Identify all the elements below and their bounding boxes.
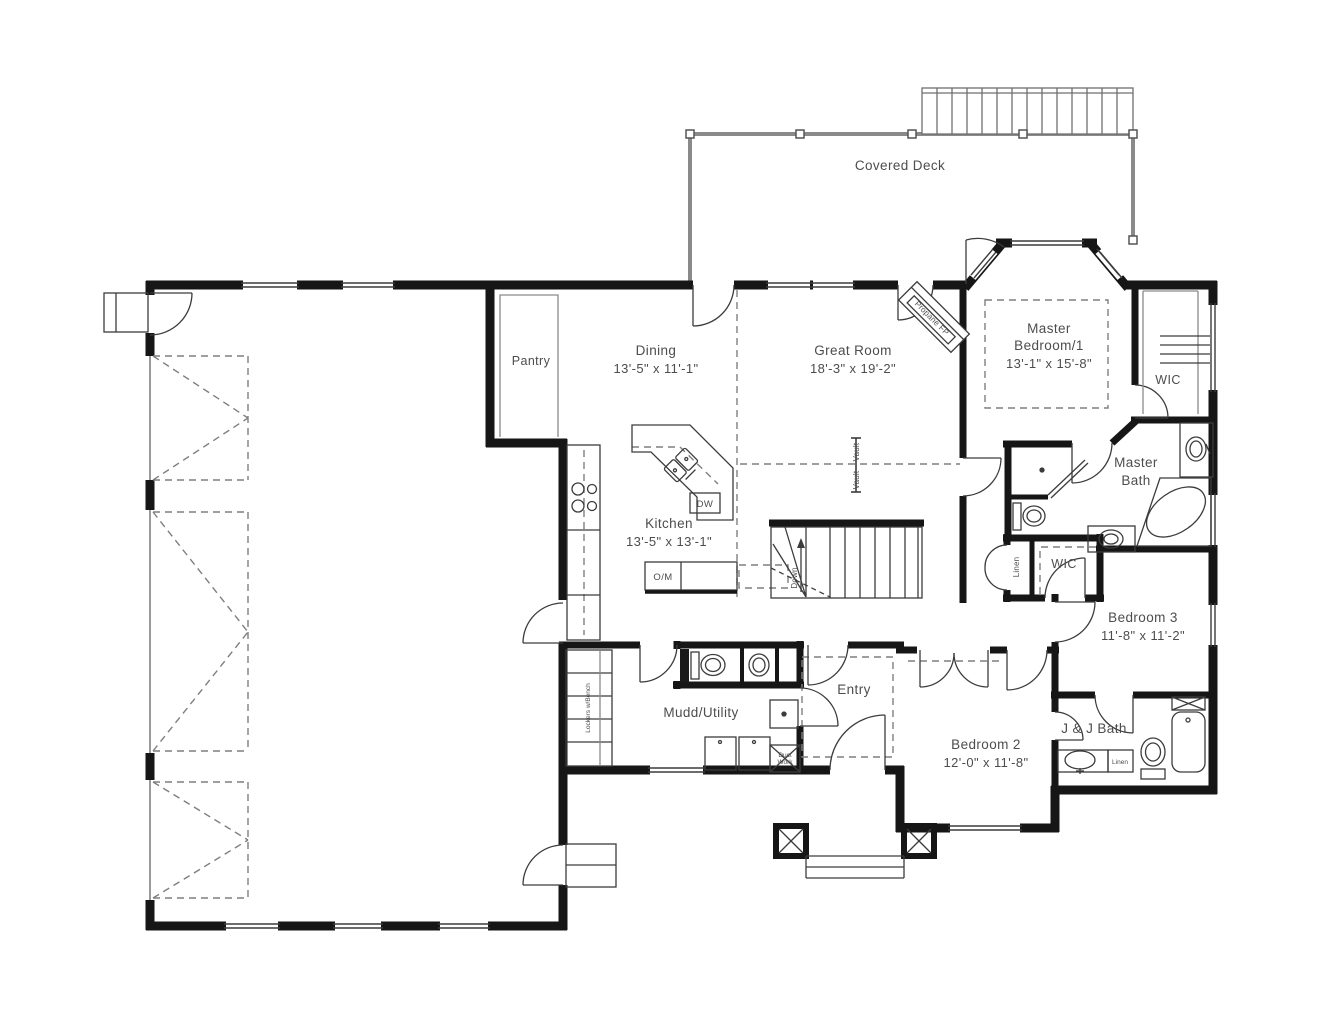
pantry-label: Pantry — [512, 354, 551, 368]
dw-label: DW — [697, 499, 714, 510]
pocket-door — [680, 649, 689, 682]
jj-bath-fixtures — [1058, 697, 1205, 779]
master-bath-label-1: Master — [1114, 455, 1158, 470]
floor-plan: Covered Deck Pantry Dining 13'-5" x 11'-… — [0, 0, 1320, 1020]
bedroom2-name: Bedroom 2 — [951, 737, 1021, 752]
porch — [104, 293, 934, 887]
kitchen-dims: 13'-5" x 13'-1" — [626, 534, 712, 549]
linen-hall-label: Linen — [1012, 557, 1021, 578]
great-room-dims: 18'-3" x 19'-2" — [810, 361, 896, 376]
wic-master-label: WIC — [1155, 373, 1181, 387]
duct-label-2: Work — [777, 759, 793, 766]
powder-fixtures — [691, 645, 777, 685]
entry-label: Entry — [837, 682, 871, 697]
master-bedroom-name-1: Master — [1027, 321, 1071, 336]
covered-deck — [686, 88, 1137, 285]
jj-bath-label: J & J Bath — [1061, 721, 1127, 736]
down-label: Down — [790, 567, 799, 588]
vault-label-lower: Vault — [852, 470, 861, 489]
vault-label-upper: Vault — [852, 442, 861, 461]
bedroom3-dims: 11'-8" x 11'-2" — [1101, 628, 1185, 643]
om-label: O/M — [653, 572, 672, 583]
dining-dims: 13'-5" x 11'-1" — [614, 361, 699, 376]
master-bedroom-dims: 13'-1" x 15'-8" — [1006, 356, 1092, 371]
mudd-utility-label: Mudd/Utility — [663, 705, 738, 720]
bedroom3-name: Bedroom 3 — [1108, 610, 1178, 625]
kitchen-name: Kitchen — [645, 516, 693, 531]
great-room-name: Great Room — [814, 343, 892, 358]
linen-jj-label: Linen — [1112, 759, 1128, 766]
duct-label-1: Duct — [778, 752, 792, 759]
floor-plan-drawing: Covered Deck Pantry Dining 13'-5" x 11'-… — [0, 0, 1320, 1020]
lockers-label: Lockers w/Bench — [585, 683, 592, 733]
dining-name: Dining — [636, 343, 677, 358]
bedroom2-dims: 12'-0" x 11'-8" — [944, 755, 1029, 770]
covered-deck-label: Covered Deck — [855, 158, 945, 173]
wic-hall-label: WIC — [1051, 557, 1077, 571]
master-bedroom-name-2: Bedroom/1 — [1014, 338, 1084, 353]
master-bath-label-2: Bath — [1121, 473, 1150, 488]
